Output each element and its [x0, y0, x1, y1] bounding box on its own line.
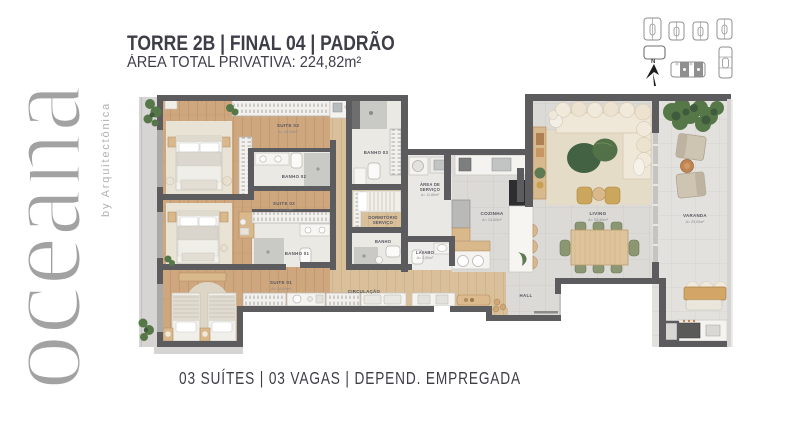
svg-text:BANHO 02: BANHO 02 [282, 174, 307, 179]
svg-text:A= 53,80m²: A= 53,80m² [588, 218, 608, 222]
svg-text:by Arquitectônica: by Arquitectônica [100, 103, 112, 217]
svg-text:oceana: oceana [0, 83, 105, 390]
svg-text:SERVIÇO: SERVIÇO [420, 187, 441, 192]
svg-text:LIVING: LIVING [589, 211, 606, 216]
svg-text:A= 15,90m²: A= 15,90m² [278, 130, 298, 134]
svg-text:A= 11,80m²: A= 11,80m² [421, 193, 440, 197]
svg-text:A= 13,60m²: A= 13,60m² [482, 218, 502, 222]
svg-text:A= 24,50m²: A= 24,50m² [271, 287, 291, 291]
svg-text:BANHO 03: BANHO 03 [364, 150, 389, 155]
svg-text:N: N [651, 59, 655, 65]
svg-text:LAVABO: LAVABO [416, 250, 435, 255]
svg-text:SUITE 01: SUITE 01 [270, 280, 292, 285]
svg-text:A= 21,00m²: A= 21,00m² [274, 208, 294, 212]
svg-text:BANHO: BANHO [375, 239, 392, 244]
svg-text:COZINHA: COZINHA [480, 211, 503, 216]
svg-text:A= 29,00m²: A= 29,00m² [686, 220, 705, 224]
svg-text:HALL: HALL [520, 293, 533, 298]
svg-text:SUITE 02: SUITE 02 [273, 201, 295, 206]
svg-text:SUITE 03: SUITE 03 [277, 123, 299, 128]
svg-text:A= 2,50m²: A= 2,50m² [417, 256, 434, 260]
svg-text:VARANDA: VARANDA [683, 213, 707, 218]
svg-text:SERVIÇO: SERVIÇO [373, 220, 394, 225]
svg-text:CIRCULAÇÃO: CIRCULAÇÃO [348, 289, 381, 294]
svg-text:BANHO 01: BANHO 01 [285, 251, 310, 256]
